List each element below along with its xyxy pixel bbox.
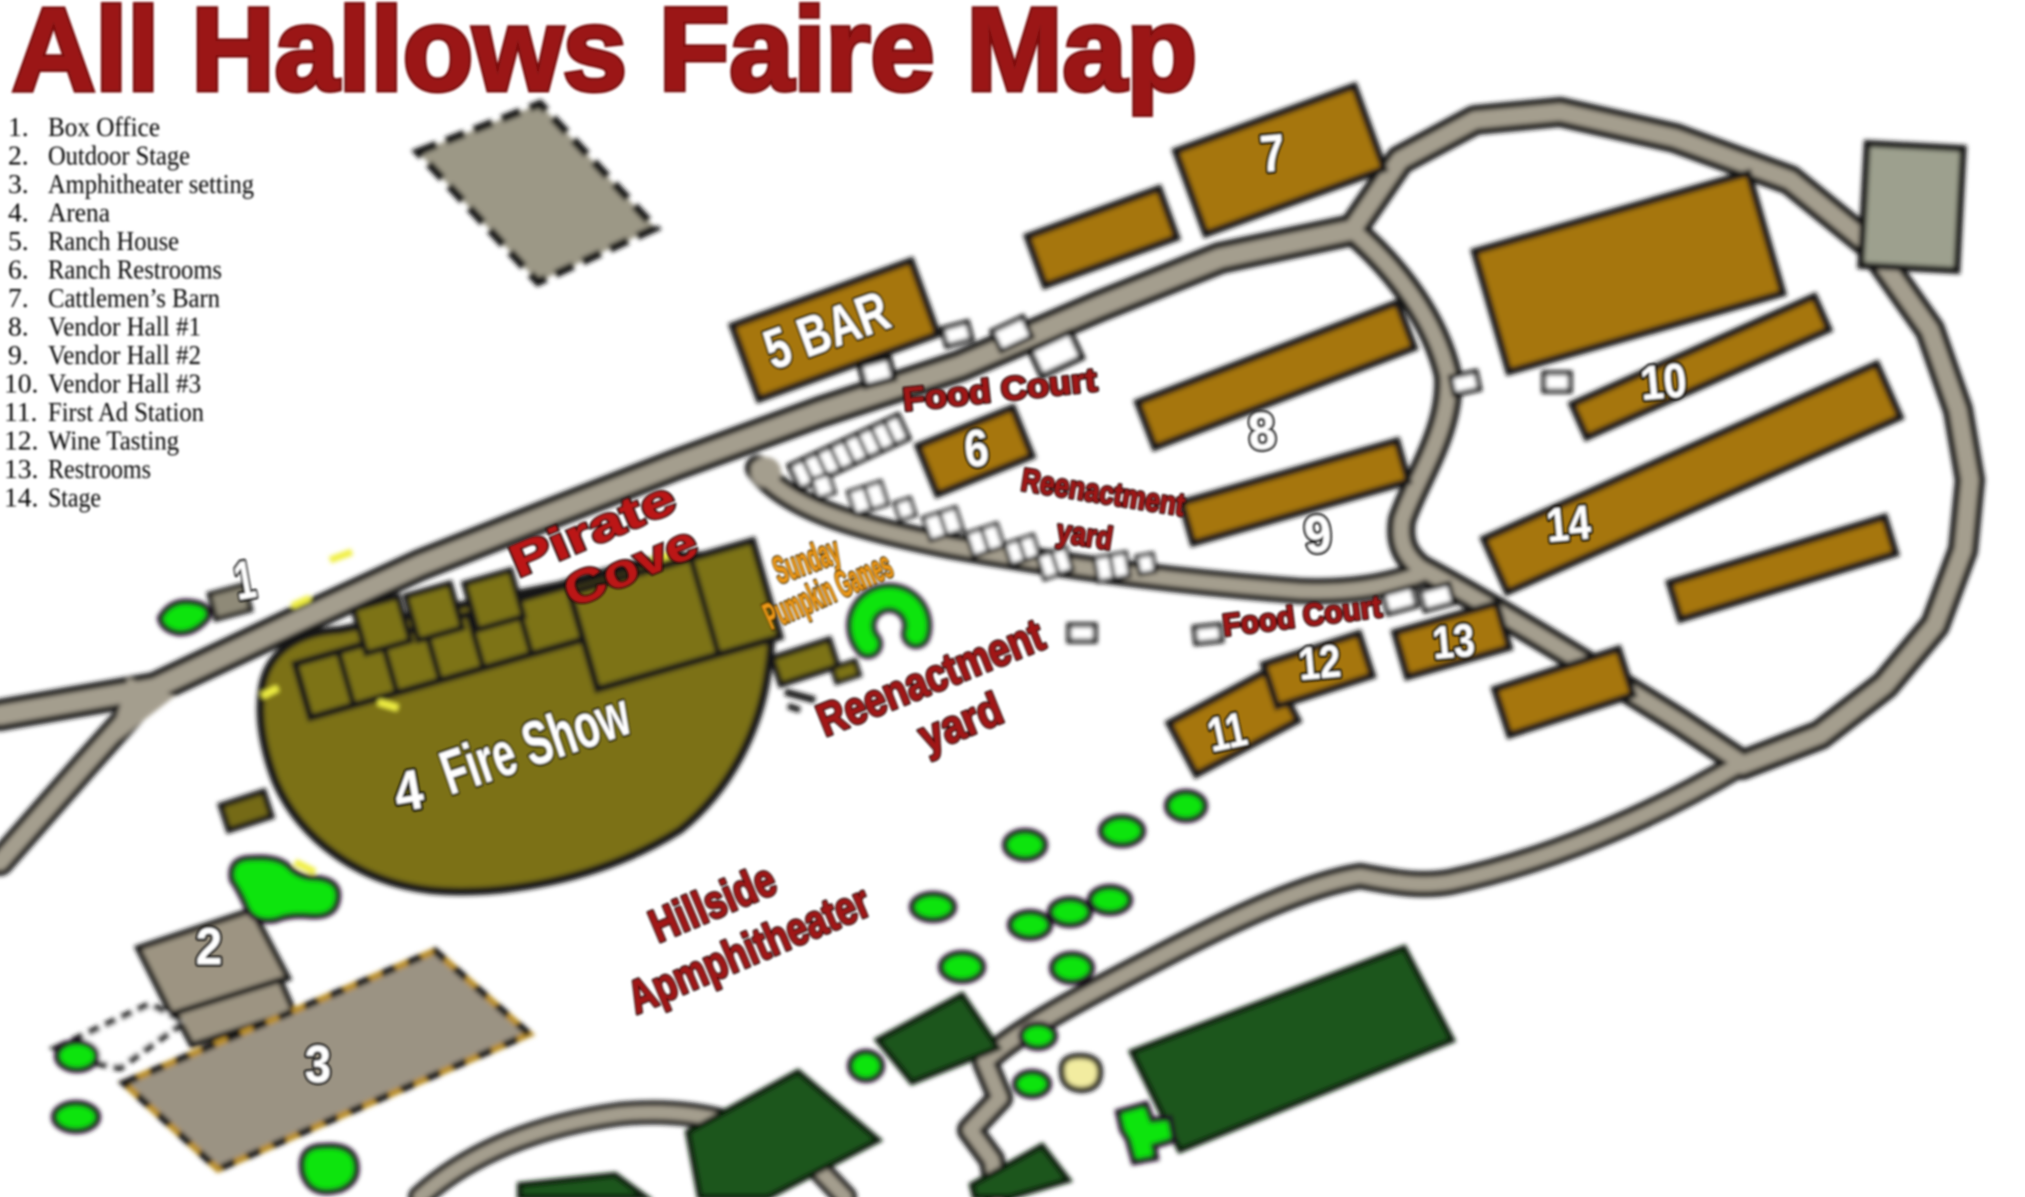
svg-text:10.: 10. [4, 368, 38, 399]
svg-text:3.: 3. [8, 168, 29, 199]
svg-text:11.: 11. [4, 396, 37, 427]
svg-text:Arena: Arena [48, 197, 110, 228]
svg-text:Outdoor Stage: Outdoor Stage [48, 140, 190, 171]
svg-text:Vendor Hall #1: Vendor Hall #1 [48, 311, 201, 342]
svg-text:First Ad Station: First Ad Station [48, 396, 204, 427]
svg-text:8: 8 [1246, 402, 1278, 462]
svg-text:10: 10 [1638, 354, 1688, 411]
svg-text:7.: 7. [8, 282, 29, 313]
svg-text:6.: 6. [8, 254, 29, 285]
svg-text:8.: 8. [8, 311, 29, 342]
svg-text:Ranch House: Ranch House [48, 225, 179, 256]
svg-text:Ranch Restrooms: Ranch Restrooms [48, 254, 222, 285]
svg-text:3: 3 [305, 1036, 331, 1094]
svg-text:Box Office: Box Office [48, 111, 160, 142]
svg-text:5.: 5. [8, 225, 29, 256]
svg-text:6: 6 [962, 419, 991, 479]
svg-text:Amphitheater setting: Amphitheater setting [48, 168, 254, 199]
svg-text:9.: 9. [8, 339, 29, 370]
svg-text:14.: 14. [4, 482, 38, 513]
svg-text:7: 7 [1258, 124, 1287, 184]
svg-text:Vendor Hall #2: Vendor Hall #2 [48, 339, 201, 370]
svg-text:4.: 4. [8, 197, 29, 228]
svg-text:13.: 13. [4, 453, 38, 484]
svg-text:Restrooms: Restrooms [48, 453, 151, 484]
svg-text:Wine Tasting: Wine Tasting [48, 425, 179, 456]
svg-text:14: 14 [1544, 496, 1593, 553]
svg-text:All Hallows Faire Map: All Hallows Faire Map [12, 0, 1197, 116]
svg-text:2.: 2. [8, 140, 29, 171]
svg-text:13: 13 [1430, 613, 1476, 668]
svg-text:12.: 12. [4, 425, 38, 456]
svg-text:Cattlemen’s Barn: Cattlemen’s Barn [48, 282, 220, 313]
svg-text:Stage: Stage [48, 482, 101, 513]
svg-text:Vendor Hall #3: Vendor Hall #3 [48, 368, 201, 399]
svg-text:9: 9 [1302, 505, 1334, 565]
svg-text:1.: 1. [8, 111, 29, 142]
svg-text:12: 12 [1296, 634, 1342, 689]
svg-text:2: 2 [196, 918, 222, 976]
